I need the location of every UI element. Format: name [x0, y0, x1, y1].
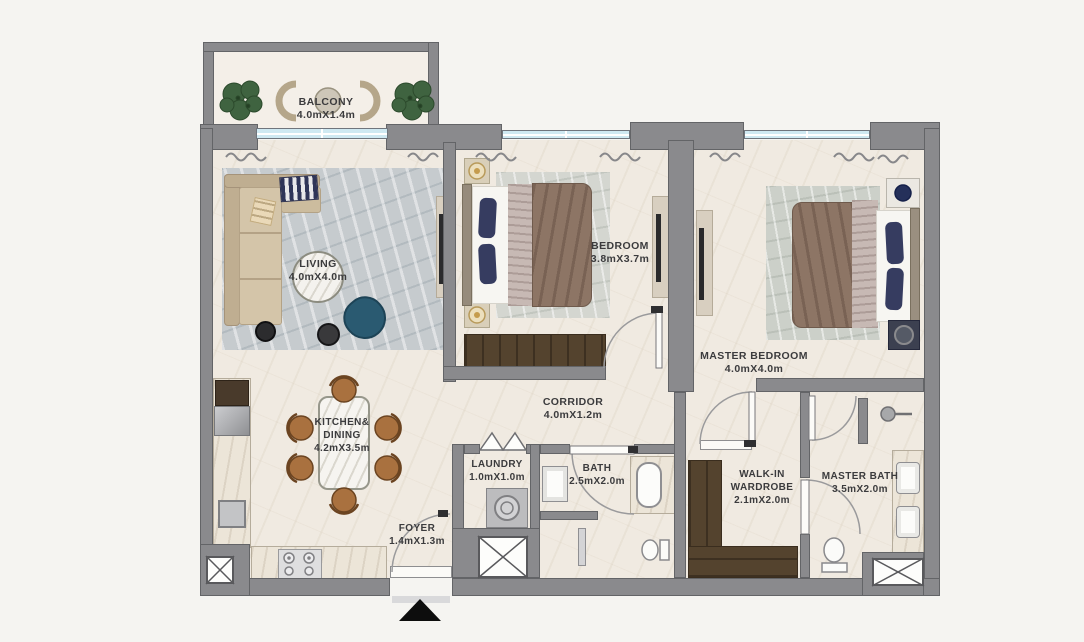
room-name: MASTER BEDROOM — [700, 350, 808, 363]
wall — [668, 140, 694, 392]
room-name: WALK-IN — [731, 468, 794, 481]
room-name: WARDROBE — [731, 481, 794, 494]
towel-rail — [578, 528, 586, 566]
bed-pillow — [478, 244, 497, 285]
balcony-sliding-door — [256, 128, 388, 139]
master-bed-duvet — [792, 202, 854, 328]
wall — [540, 511, 598, 520]
room-name: BATH — [569, 462, 625, 475]
washing-machine — [486, 488, 528, 528]
room-label-balcony: BALCONY 4.0mX1.4m — [297, 96, 355, 122]
wall — [800, 534, 810, 578]
room-label-foyer: FOYER 1.4mX1.3m — [389, 522, 445, 548]
vanity-sink — [896, 506, 920, 538]
room-dims: 3.8mX3.7m — [591, 253, 649, 266]
room-dims: 4.2mX3.5m — [314, 442, 370, 455]
walk-in-wardrobe-unit — [688, 546, 798, 578]
bath-sink — [542, 466, 568, 502]
room-label-master-bedroom: MASTER BEDROOM 4.0mX4.0m — [700, 350, 808, 376]
room-dims: 4.0mX1.2m — [543, 409, 603, 422]
kitchen-sink — [218, 500, 246, 528]
room-name: DINING — [314, 429, 370, 442]
wall — [540, 444, 570, 454]
master-nightstand — [886, 178, 920, 208]
fridge — [215, 380, 249, 406]
tv-screen-master — [699, 228, 704, 300]
room-dims: 4.0mX1.4m — [297, 109, 355, 122]
room-label-corridor: CORRIDOR 4.0mX1.2m — [543, 396, 603, 422]
room-dims: 2.1mX2.0m — [731, 494, 794, 507]
wall — [858, 398, 868, 444]
wall — [800, 392, 810, 478]
wall — [443, 142, 456, 382]
wall — [443, 366, 606, 380]
kitchen-appliance — [214, 406, 250, 436]
master-bed-blanket — [852, 200, 878, 328]
wardrobe-door-threshold — [700, 440, 752, 450]
room-name: LIVING — [289, 258, 347, 271]
master-bed-headboard — [910, 208, 920, 324]
wall — [428, 42, 439, 134]
bed-pillow — [478, 198, 497, 239]
service-shaft — [872, 558, 924, 586]
wall — [203, 42, 439, 52]
floor-plan: BALCONY 4.0mX1.4m LIVING 4.0mX4.0m BEDRO… — [0, 0, 1084, 642]
service-shaft — [478, 536, 528, 578]
room-name: MASTER BATH — [822, 470, 898, 483]
wall — [530, 444, 540, 532]
wall — [924, 128, 940, 596]
room-name: BEDROOM — [591, 240, 649, 253]
room-label-laundry: LAUNDRY 1.0mX1.0m — [469, 458, 525, 484]
room-dims: 4.0mX4.0m — [700, 363, 808, 376]
side-table — [255, 321, 276, 342]
striped-pillow — [279, 175, 319, 203]
room-name: CORRIDOR — [543, 396, 603, 409]
wall — [464, 444, 480, 454]
bedroom-window — [502, 130, 630, 139]
room-dims: 2.5mX2.0m — [569, 475, 625, 488]
room-name: LAUNDRY — [469, 458, 525, 471]
cooktop — [278, 549, 322, 579]
room-dims: 1.4mX1.3m — [389, 535, 445, 548]
room-label-living: LIVING 4.0mX4.0m — [289, 258, 347, 284]
wall — [200, 128, 213, 596]
wall — [674, 392, 686, 578]
room-label-kitchen-dining: KITCHEN& DINING 4.2mX3.5m — [314, 416, 370, 455]
room-label-walk-in-wardrobe: WALK-IN WARDROBE 2.1mX2.0m — [731, 468, 794, 507]
room-label-bath: BATH 2.5mX2.0m — [569, 462, 625, 488]
room-dims: 1.0mX1.0m — [469, 471, 525, 484]
entrance-threshold — [390, 566, 452, 578]
room-dims: 3.5mX2.0m — [822, 483, 898, 496]
master-bed-pillow — [885, 222, 904, 265]
nightstand — [464, 158, 490, 184]
bed-blanket — [508, 184, 532, 306]
room-name: KITCHEN& — [314, 416, 370, 429]
tv-screen-bedroom — [656, 214, 661, 282]
master-bed-pillow — [885, 268, 904, 311]
service-shaft — [206, 556, 234, 584]
bathtub — [636, 462, 662, 508]
wall — [756, 378, 924, 392]
master-nightstand — [888, 320, 920, 350]
room-name: BALCONY — [297, 96, 355, 109]
room-label-master-bath: MASTER BATH 3.5mX2.0m — [822, 470, 898, 496]
bed-duvet — [532, 183, 592, 307]
side-table — [317, 323, 340, 346]
wardrobe — [464, 334, 606, 370]
wall — [203, 42, 214, 134]
master-bedroom-window — [744, 130, 870, 139]
vanity-sink — [896, 462, 920, 494]
bed-headboard — [462, 184, 472, 306]
room-name: FOYER — [389, 522, 445, 535]
sofa-back — [224, 174, 240, 326]
entrance-step — [392, 596, 450, 603]
room-dims: 4.0mX4.0m — [289, 271, 347, 284]
room-label-bedroom: BEDROOM 3.8mX3.7m — [591, 240, 649, 266]
